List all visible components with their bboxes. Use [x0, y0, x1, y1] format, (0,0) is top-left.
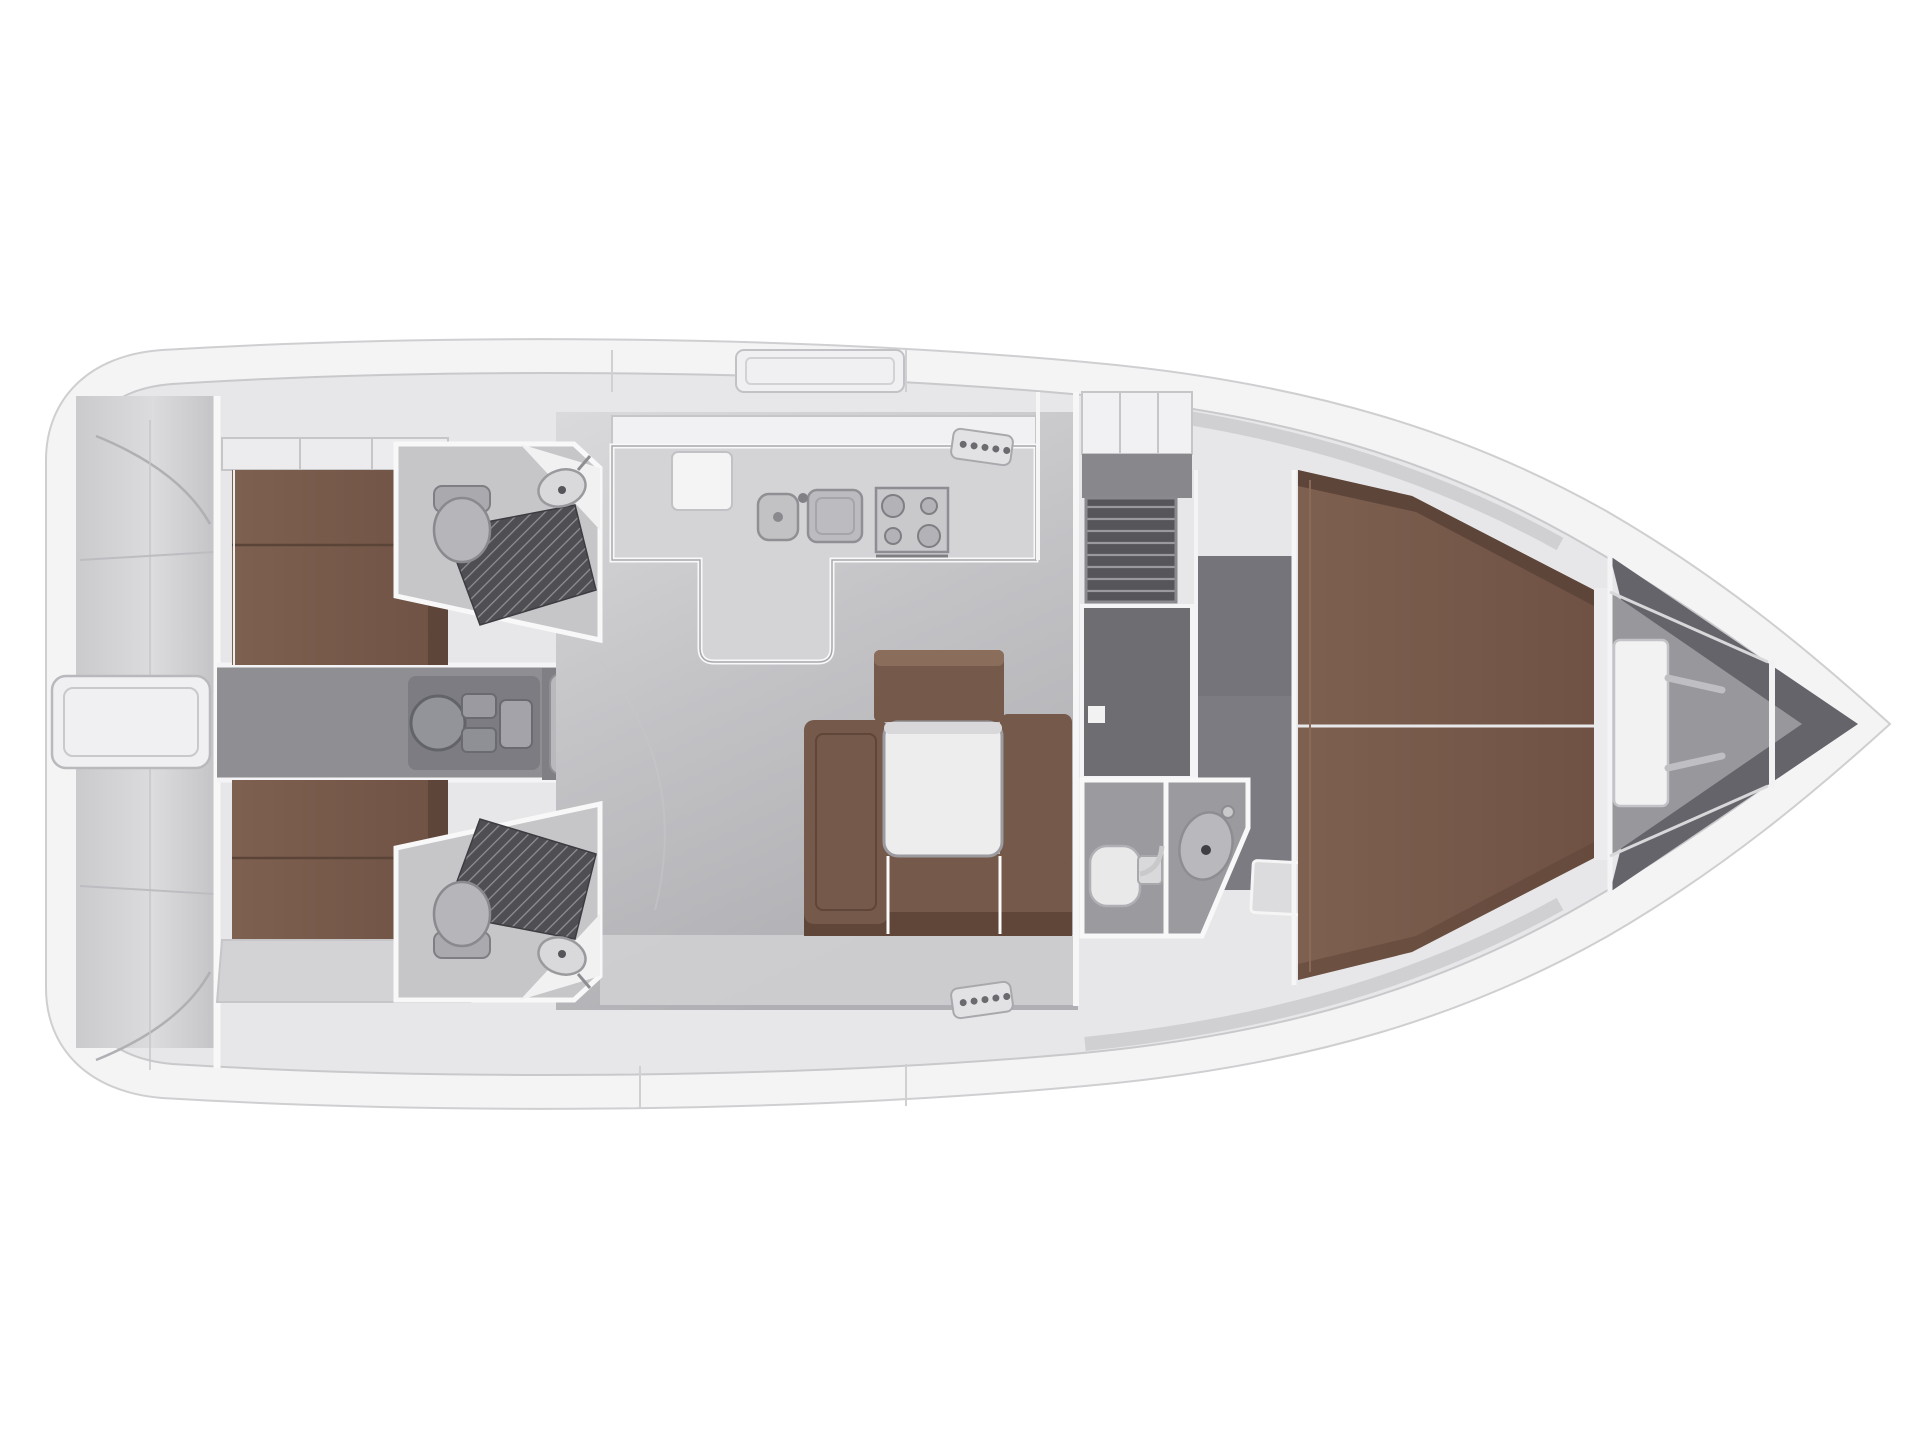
- locker-gap: [1082, 454, 1192, 498]
- lazarette-hatch: [52, 676, 210, 768]
- burner: [885, 528, 901, 544]
- fridge-lid: [672, 452, 732, 510]
- entry-floor-upper: [1196, 556, 1292, 696]
- faucet: [798, 493, 808, 503]
- bench-seat-top: [874, 650, 1004, 666]
- engine-detail-a: [462, 694, 496, 718]
- sink-drain: [558, 950, 566, 958]
- toilet: [434, 882, 490, 946]
- steering-quadrant: [411, 696, 465, 750]
- sliding-hatch: [736, 350, 904, 392]
- louver-locker: [1086, 498, 1176, 602]
- sink-drain: [558, 486, 566, 494]
- toilet: [1090, 846, 1140, 906]
- faucet: [1222, 806, 1234, 818]
- yacht-floor-plan: [0, 0, 1920, 1440]
- engine-detail-c: [500, 700, 532, 748]
- burner: [921, 498, 937, 514]
- stern-transom: [52, 396, 217, 1070]
- burner: [918, 525, 940, 547]
- sink-drain: [773, 512, 783, 522]
- salon-table: [884, 722, 1002, 856]
- sink-drain: [1201, 845, 1211, 855]
- engine-detail-b: [462, 728, 496, 752]
- stove: [876, 488, 948, 556]
- floor-plan-stage: [0, 0, 1920, 1440]
- anchor-windlass: [1614, 640, 1668, 806]
- settee-right: [1000, 714, 1072, 862]
- wardrobe-room: [1082, 606, 1192, 778]
- foot-board: [1594, 588, 1608, 860]
- table-edge: [884, 722, 1002, 734]
- wardrobe-door-handle: [1088, 706, 1105, 723]
- burner: [882, 495, 904, 517]
- upper-cabinets: [1082, 392, 1192, 454]
- toilet: [434, 498, 490, 562]
